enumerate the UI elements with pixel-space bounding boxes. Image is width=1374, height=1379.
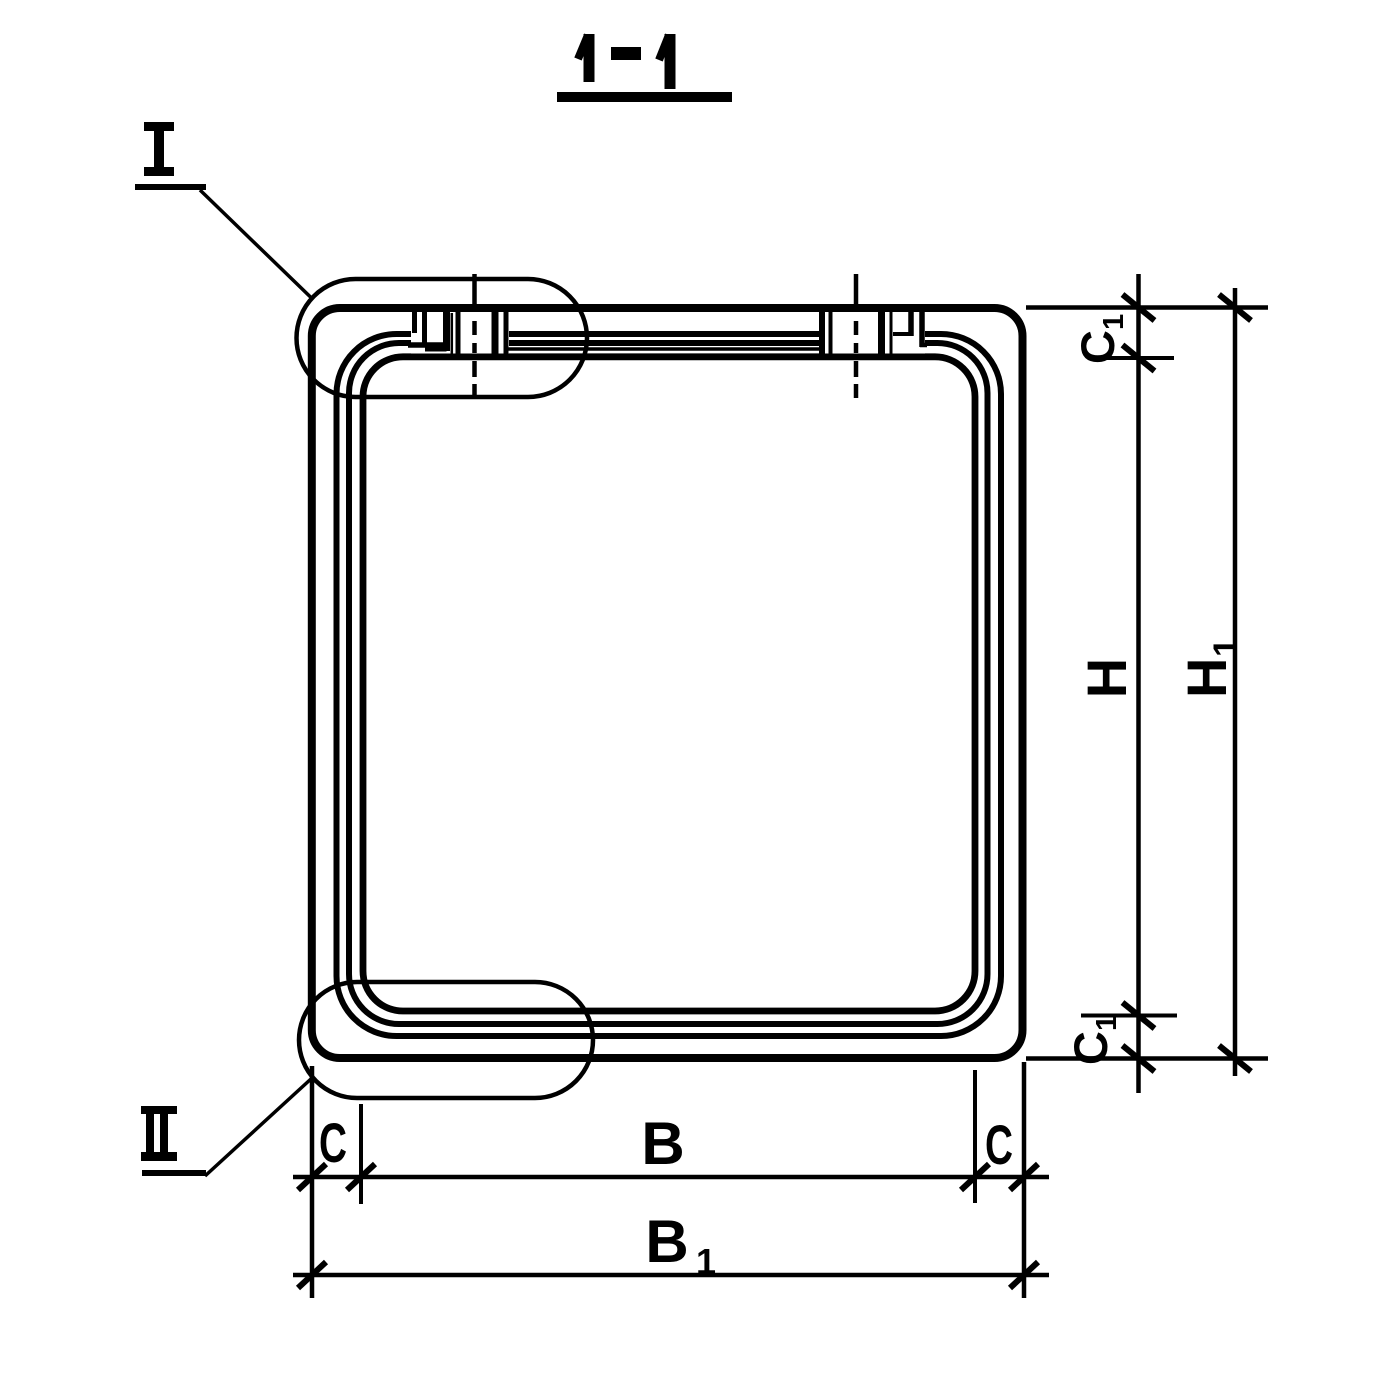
svg-text:H: H (1075, 658, 1138, 698)
svg-text:B: B (641, 1110, 684, 1177)
svg-text:H: H (1175, 658, 1238, 698)
svg-text:C: C (319, 1111, 347, 1174)
svg-text:C: C (985, 1113, 1013, 1176)
svg-text:1: 1 (1091, 1015, 1123, 1031)
svg-text:C: C (1064, 1031, 1117, 1065)
svg-text:1: 1 (696, 1241, 716, 1282)
svg-text:1: 1 (1207, 638, 1245, 657)
svg-text:1: 1 (1098, 314, 1130, 330)
svg-text:B: B (645, 1208, 688, 1275)
svg-text:C: C (1071, 330, 1124, 364)
